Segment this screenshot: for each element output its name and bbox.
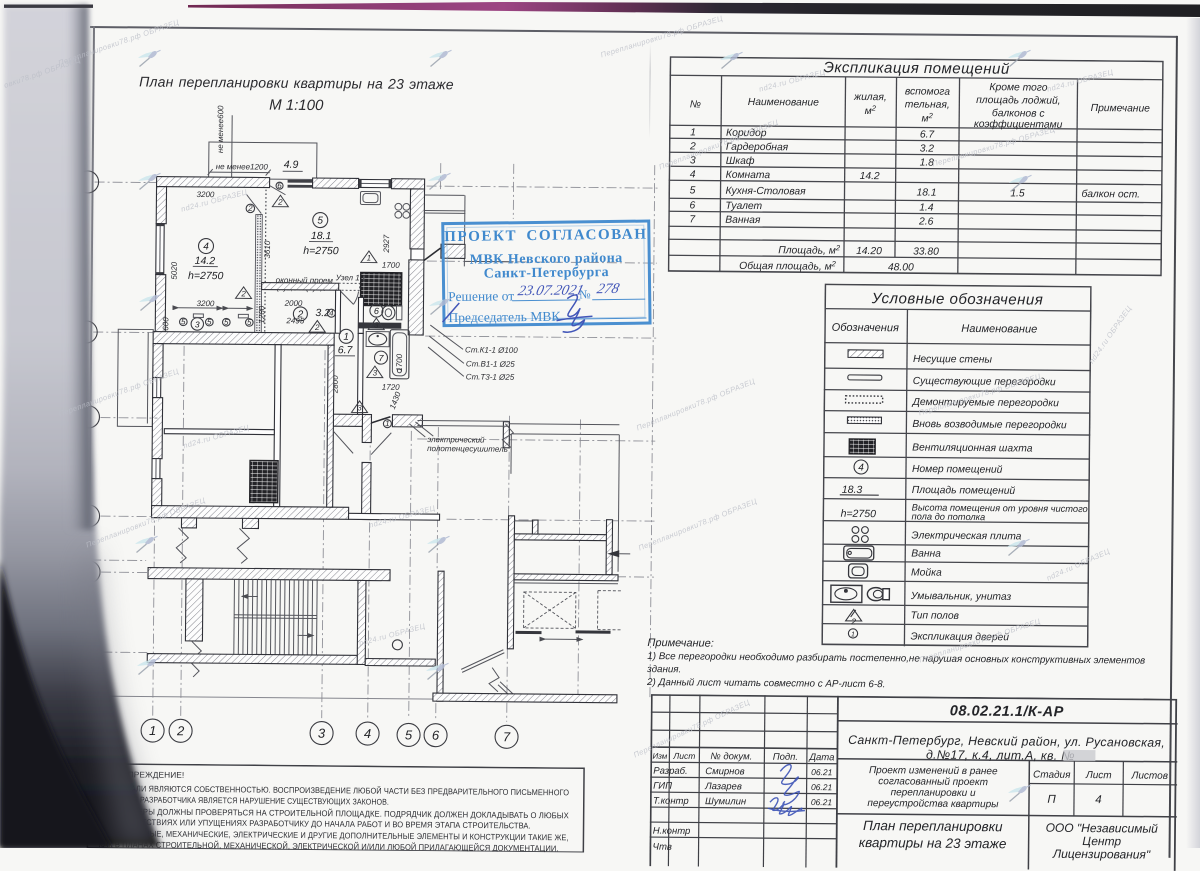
svg-text:Лицензирования": Лицензирования" xyxy=(1052,847,1151,862)
